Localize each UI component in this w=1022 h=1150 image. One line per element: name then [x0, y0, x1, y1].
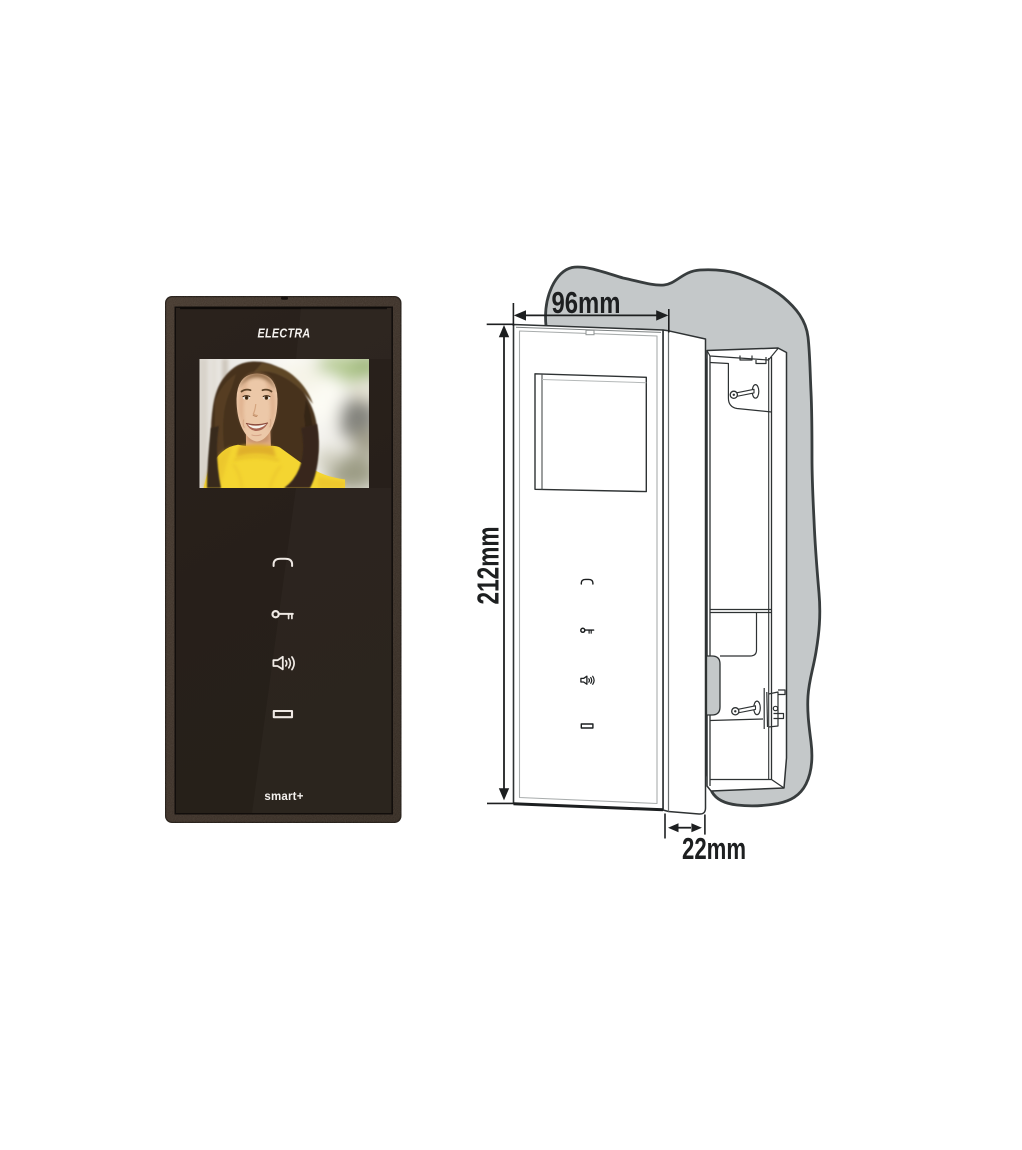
svg-text:22mm: 22mm	[682, 831, 746, 866]
svg-text:212mm: 212mm	[471, 527, 506, 605]
svg-text:ELECTRA: ELECTRA	[258, 326, 311, 341]
svg-text:smart+: smart+	[264, 791, 303, 803]
svg-text:96mm: 96mm	[552, 285, 621, 320]
